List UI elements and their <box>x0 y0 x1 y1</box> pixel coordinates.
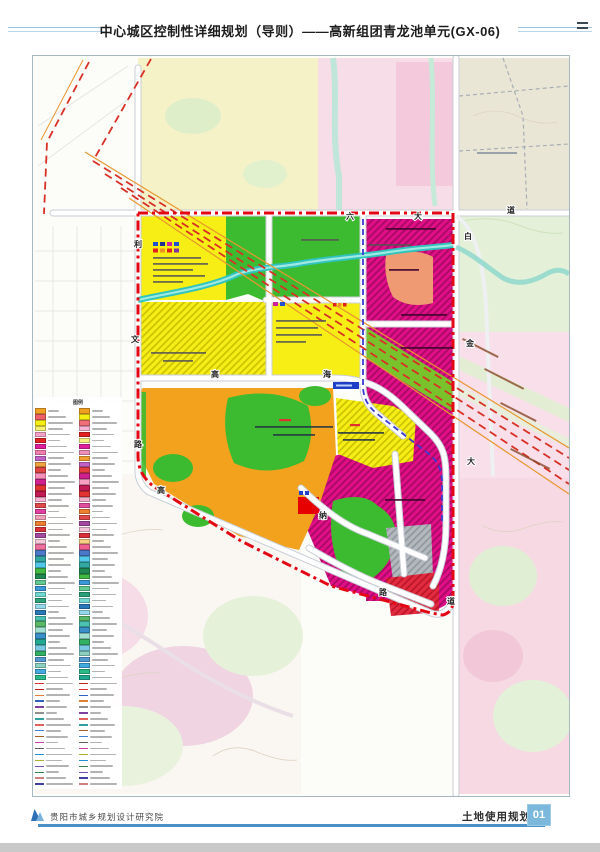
legend-column-1 <box>35 408 76 787</box>
road-label: 道 <box>447 596 455 606</box>
institute-logo-icon <box>31 808 45 822</box>
zone-yellow-hatched-west <box>141 302 269 378</box>
road-label: 金 <box>465 338 475 348</box>
road-label: 大 <box>467 456 475 466</box>
page-corner-marks <box>577 22 588 31</box>
road-label: 白 <box>464 231 472 241</box>
document-page: 中心城区控制性详细规划（导则）——高新组团青龙池单元(GX-06) <box>0 0 600 852</box>
road-label: 六 <box>346 211 354 221</box>
road-label: 路 <box>379 587 388 597</box>
map-legend: 图例 <box>34 397 122 789</box>
legend-title: 图例 <box>35 399 121 406</box>
legend-row <box>35 781 76 787</box>
legend-column-2 <box>79 408 120 787</box>
legend-row <box>79 781 120 787</box>
page-number-badge: 01 <box>527 804 551 826</box>
road-label: 高 <box>157 485 165 495</box>
page-title: 中心城区控制性详细规划（导则）——高新组团青龙池单元(GX-06) <box>0 21 600 40</box>
rail-transit-label <box>477 152 517 154</box>
road-label: 纳 <box>319 510 327 520</box>
road-label: 海 <box>323 369 331 379</box>
road-label: 文 <box>131 334 140 344</box>
forest-park-green <box>225 394 311 471</box>
road-label: 路 <box>134 439 143 449</box>
plan-sheet: 中心城区控制性详细规划（导则）——高新组团青龙池单元(GX-06) <box>0 0 600 843</box>
road-label: 高 <box>211 369 219 379</box>
institute-name: 贵阳市城乡规划设计研究院 <box>50 811 164 823</box>
land-use-map[interactable]: 六大道白金大道利文路高海高纳路 图例 <box>32 55 570 797</box>
footer-rule <box>38 824 545 827</box>
road-label: 利 <box>133 239 142 249</box>
road-label: 大 <box>414 211 422 221</box>
road-label: 道 <box>507 205 515 215</box>
